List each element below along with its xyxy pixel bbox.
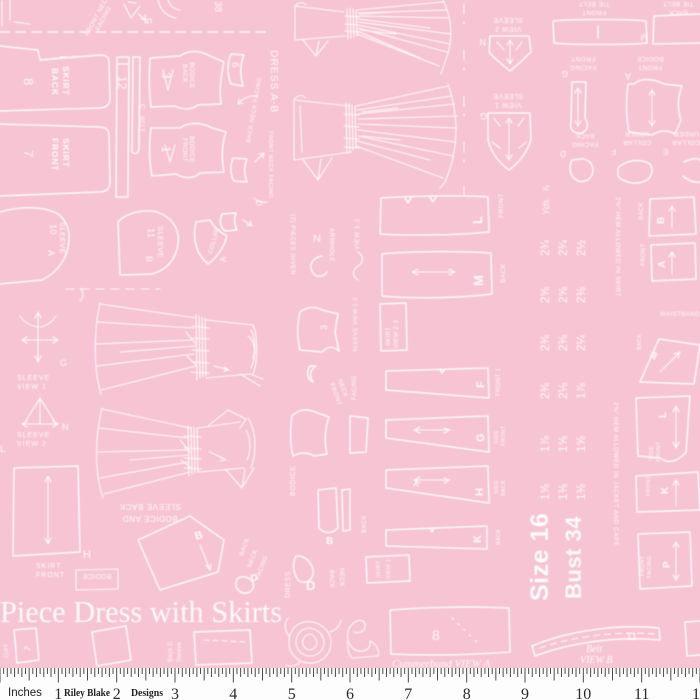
svg-text:K: K <box>660 486 671 494</box>
svg-text:5: 5 <box>143 18 155 24</box>
svg-text:FRONT: FRONT <box>646 475 652 496</box>
svg-text:BODICE AND: BODICE AND <box>122 514 177 523</box>
svg-text:K: K <box>472 535 484 543</box>
svg-text:FRONT: FRONT <box>641 243 647 266</box>
svg-text:11: 11 <box>634 686 649 700</box>
svg-text:UPPER: UPPER <box>625 130 649 137</box>
svg-text:Back C: Back C <box>168 640 174 662</box>
svg-text:ARMHOLE: ARMHOLE <box>328 228 335 262</box>
svg-text:BELT: BELT <box>138 116 144 132</box>
svg-text:FRONT: FRONT <box>656 441 662 462</box>
svg-text:2⅜: 2⅜ <box>540 383 552 399</box>
svg-text:SLEEVE: SLEEVE <box>156 226 165 258</box>
svg-text:D: D <box>306 578 315 593</box>
svg-text:FRONT: FRONT <box>571 55 595 62</box>
svg-text:M: M <box>471 275 486 286</box>
svg-text:1: 1 <box>54 686 62 700</box>
svg-text:VIEW 2: VIEW 2 <box>495 25 522 32</box>
svg-text:D: D <box>560 149 566 158</box>
svg-text:FRONT: FRONT <box>36 572 65 579</box>
svg-text:3: 3 <box>319 325 329 330</box>
svg-text:SLEEVE: SLEEVE <box>17 432 50 439</box>
svg-text:BODICE: BODICE <box>188 136 195 163</box>
svg-text:Size 16: Size 16 <box>526 513 554 601</box>
svg-text:A: A <box>657 261 668 268</box>
svg-text:FRONT 1: FRONT 1 <box>496 367 502 396</box>
svg-text:10: 10 <box>48 224 58 235</box>
svg-text:8: 8 <box>463 686 471 700</box>
svg-text:FRONT: FRONT <box>582 9 606 16</box>
svg-text:VIEW 1: VIEW 1 <box>386 559 392 579</box>
svg-text:FRONT: FRONT <box>50 138 60 171</box>
svg-text:VIEW 1: VIEW 1 <box>495 101 522 108</box>
svg-text:11: 11 <box>626 631 637 643</box>
svg-text:BACK: BACK <box>575 132 595 139</box>
svg-text:2⅝: 2⅝ <box>540 287 552 303</box>
svg-text:7: 7 <box>404 686 412 700</box>
svg-text:SKIRT: SKIRT <box>376 560 382 578</box>
svg-text:M: M <box>641 32 649 42</box>
svg-text:BACK: BACK <box>500 263 507 283</box>
svg-text:DRESS: DRESS <box>285 571 292 598</box>
svg-text:A: A <box>219 256 228 262</box>
svg-text:F: F <box>475 381 487 388</box>
svg-text:SKIRT: SKIRT <box>386 327 392 346</box>
svg-text:(2) PIECES GIVEN: (2) PIECES GIVEN <box>289 214 296 275</box>
svg-text:A: A <box>46 250 56 256</box>
svg-text:2⅜: 2⅜ <box>576 287 588 303</box>
svg-text:C: C <box>138 104 145 109</box>
svg-text:4: 4 <box>229 686 237 700</box>
svg-text:E: E <box>663 147 668 156</box>
svg-text:1⅝: 1⅝ <box>558 436 570 452</box>
svg-text:2⅛: 2⅛ <box>558 383 570 399</box>
svg-text:G: G <box>562 69 568 78</box>
svg-text:VIEW B: VIEW B <box>580 655 613 666</box>
svg-text:BODICE: BODICE <box>636 55 664 62</box>
svg-text:2⅜: 2⅜ <box>558 335 570 351</box>
svg-text:L: L <box>470 216 485 224</box>
svg-text:1⅜: 1⅜ <box>576 484 588 500</box>
svg-text:FRONT: FRONT <box>181 138 188 162</box>
svg-text:SKIRT: SKIRT <box>61 66 71 96</box>
svg-text:6: 6 <box>346 686 354 700</box>
svg-text:G: G <box>255 200 264 206</box>
svg-text:NECK: NECK <box>338 568 345 587</box>
svg-text:CUFF: CUFF <box>4 643 10 658</box>
svg-text:TIE BELT: TIE BELT <box>663 0 694 7</box>
svg-text:P: P <box>662 561 673 568</box>
svg-text:B: B <box>326 536 333 547</box>
svg-text:UNDER: UNDER <box>673 130 698 137</box>
svg-text:B: B <box>144 256 154 262</box>
svg-text:VIEW 1: VIEW 1 <box>17 384 47 391</box>
svg-text:1⅜: 1⅜ <box>558 484 570 500</box>
svg-text:9: 9 <box>521 686 529 700</box>
svg-text:1⅝: 1⅝ <box>576 436 588 452</box>
svg-text:VIEW 2: VIEW 2 <box>17 441 47 448</box>
svg-text:FRONT: FRONT <box>638 64 662 71</box>
svg-text:2⅝: 2⅝ <box>558 287 570 303</box>
svg-text:SLEEVE: SLEEVE <box>493 16 523 23</box>
svg-text:SIDE: SIDE <box>649 446 655 460</box>
svg-text:5: 5 <box>288 686 296 700</box>
svg-text:Yds.: Yds. <box>541 197 551 215</box>
svg-text:N: N <box>62 422 69 432</box>
svg-text:F: F <box>611 147 616 156</box>
svg-text:WAISTBAND: WAISTBAND <box>660 312 700 318</box>
svg-text:8: 8 <box>21 78 36 85</box>
svg-text:VIEW 1-2: VIEW 1-2 <box>354 218 361 250</box>
svg-text:3: 3 <box>171 686 179 700</box>
svg-text:1: 1 <box>159 146 173 153</box>
svg-text:SKIRT: SKIRT <box>36 563 62 570</box>
svg-text:SLEEVE BACK: SLEEVE BACK <box>119 502 181 511</box>
svg-text:2: 2 <box>113 686 121 700</box>
svg-text:FACING: FACING <box>572 141 599 148</box>
svg-text:BACK: BACK <box>501 480 507 496</box>
svg-text:2½: 2½ <box>576 240 588 256</box>
svg-text:DRESS A-B: DRESS A-B <box>268 50 280 113</box>
svg-text:BACK: BACK <box>637 334 643 350</box>
svg-text:FRONT: FRONT <box>498 193 505 218</box>
svg-text:Inches: Inches <box>8 687 42 699</box>
svg-text:H: H <box>83 549 91 561</box>
svg-text:2¼: 2¼ <box>576 335 588 351</box>
svg-text:Designs: Designs <box>131 687 164 699</box>
svg-text:FRONT: FRONT <box>501 425 507 446</box>
svg-text:SLEEVE: SLEEVE <box>17 375 50 382</box>
svg-text:2¾: 2¾ <box>540 240 552 256</box>
svg-text:N: N <box>313 233 321 245</box>
svg-text:BACK: BACK <box>328 570 335 589</box>
svg-text:H: H <box>474 488 486 496</box>
svg-text:2⅜: 2⅜ <box>540 335 552 351</box>
svg-text:12: 12 <box>115 76 129 90</box>
svg-text:L: L <box>0 444 6 455</box>
svg-text:38: 38 <box>212 1 223 13</box>
svg-text:1⅞: 1⅞ <box>540 436 552 452</box>
svg-text:Belt: Belt <box>586 644 602 655</box>
svg-text:BACK: BACK <box>50 68 60 96</box>
svg-text:SLEEVE: SLEEVE <box>493 92 523 99</box>
svg-text:FRONT: FRONT <box>640 555 646 576</box>
svg-text:N: N <box>480 37 487 47</box>
svg-text:1⅝: 1⅝ <box>540 484 552 500</box>
svg-text:6: 6 <box>229 62 240 68</box>
svg-text:SLEEVE: SLEEVE <box>58 222 67 254</box>
svg-text:BACK: BACK <box>639 202 645 220</box>
svg-text:SIDE: SIDE <box>494 480 500 494</box>
svg-text:8: 8 <box>432 627 440 643</box>
svg-text:FACING: FACING <box>352 375 358 400</box>
svg-text:BACK: BACK <box>668 9 688 16</box>
svg-text:BACK: BACK <box>181 64 188 83</box>
svg-text:COLLAR: COLLAR <box>623 139 651 146</box>
svg-text:BODICE: BODICE <box>82 572 111 579</box>
svg-text:Riley Blake: Riley Blake <box>64 687 110 699</box>
svg-text:BODICE: BODICE <box>290 466 297 496</box>
svg-text:2¾" HEM ALLOWED IN JACKET AND: 2¾" HEM ALLOWED IN JACKET AND CAPE <box>612 402 619 547</box>
svg-text:2¾: 2¾ <box>558 240 570 256</box>
svg-text:TIE BELT: TIE BELT <box>579 0 610 7</box>
svg-text:G: G <box>60 358 67 368</box>
svg-text:COLLAR: COLLAR <box>672 139 700 146</box>
svg-text:BODICE: BODICE <box>188 62 195 89</box>
svg-text:SLEEVE VIEW 1-2: SLEEVE VIEW 1-2 <box>353 297 359 352</box>
svg-text:Piece Dress with Skirts: Piece Dress with Skirts <box>0 594 282 629</box>
svg-text:FACING: FACING <box>647 556 653 578</box>
svg-text:G: G <box>475 433 487 442</box>
svg-text:SIDE: SIDE <box>494 430 500 444</box>
svg-text:3: 3 <box>159 72 173 79</box>
svg-text:L: L <box>658 412 669 418</box>
svg-text:G: G <box>480 111 487 121</box>
svg-text:Sleeve: Sleeve <box>177 641 183 662</box>
svg-text:12: 12 <box>692 686 700 700</box>
svg-text:⅞: ⅞ <box>542 185 551 192</box>
svg-text:FRONT NECK FACING: FRONT NECK FACING <box>267 131 273 199</box>
svg-text:10: 10 <box>575 686 591 700</box>
svg-text:2¾" HEM ALLOWED IN SKIRT: 2¾" HEM ALLOWED IN SKIRT <box>614 197 621 297</box>
svg-text:Bust 34: Bust 34 <box>561 516 586 599</box>
svg-text:SKIRT: SKIRT <box>61 138 71 168</box>
svg-text:B: B <box>656 217 667 224</box>
svg-text:FACING: FACING <box>570 64 597 71</box>
svg-text:1⅞: 1⅞ <box>576 383 588 399</box>
svg-text:11: 11 <box>146 228 156 238</box>
svg-text:BACK: BACK <box>496 529 502 545</box>
svg-text:VIEW 2-3: VIEW 2-3 <box>394 320 400 348</box>
svg-text:A: A <box>625 71 631 81</box>
svg-text:7: 7 <box>21 150 36 157</box>
svg-text:BACK: BACK <box>362 515 368 533</box>
